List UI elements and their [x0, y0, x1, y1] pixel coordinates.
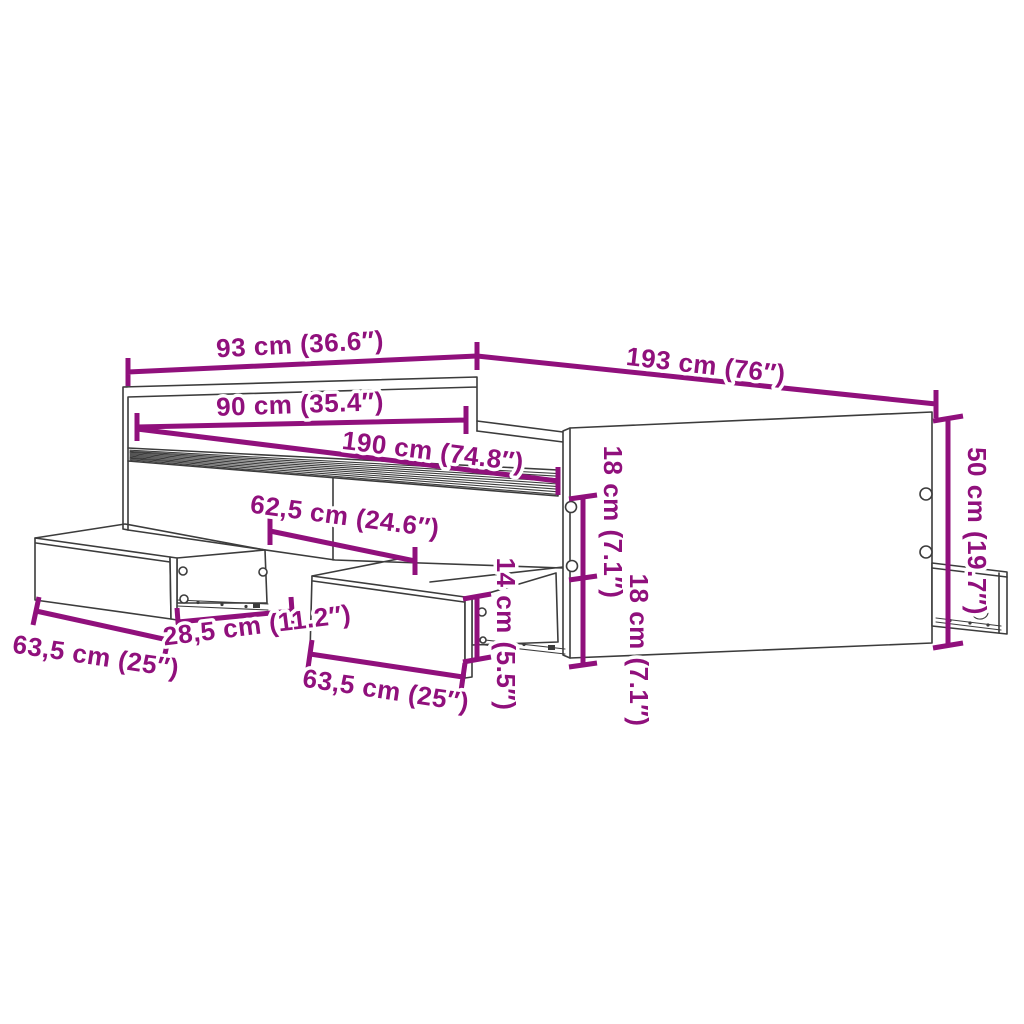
drawer-middle-rim — [312, 559, 398, 576]
dim-headboard-width: 93 cm (36.6″) — [128, 325, 477, 386]
dim-label-drawer-offset: 62,5 cm (24.6″) — [249, 489, 442, 544]
dim-label-drawer-front-height: 14 cm (5.5″) — [491, 558, 521, 711]
dim-label-end-panel-height: 50 cm (19.7″) — [962, 447, 992, 615]
bed-frame-dimension-diagram: 93 cm (36.6″) 193 cm (76″) 90 cm (35.4″)… — [0, 0, 1024, 1024]
screw — [244, 605, 247, 608]
dim-label-rail-lower-height: 18 cm (7.1″) — [624, 574, 654, 727]
drawer-left-inner-side — [177, 550, 267, 603]
screw — [522, 643, 525, 646]
dim-drawer-offset: 62,5 cm (24.6″) — [249, 489, 442, 575]
bolt-hole — [567, 561, 578, 572]
drawer-hole — [179, 567, 187, 575]
far-side-rail — [477, 421, 563, 442]
screw — [220, 603, 223, 606]
dim-label-rail-upper-height: 18 cm (7.1″) — [598, 446, 628, 599]
slide-stop — [548, 645, 555, 650]
slide-stop — [253, 603, 260, 608]
drawer-left-front — [35, 538, 171, 619]
screw — [196, 601, 199, 604]
screw — [968, 621, 971, 624]
dim-label-mattress-width: 90 cm (35.4″) — [216, 386, 385, 422]
dim-label-headboard-width: 93 cm (36.6″) — [215, 325, 384, 364]
screw — [986, 623, 989, 626]
bolt-hole — [920, 546, 932, 558]
bolt-hole — [920, 488, 932, 500]
dim-frame-length: 193 cm (76″) — [477, 341, 936, 418]
drawer-hole — [480, 637, 486, 643]
drawer-left — [35, 524, 268, 620]
drawer-hole — [180, 595, 188, 603]
bolt-hole — [566, 502, 577, 513]
drawer-hole — [259, 568, 267, 576]
